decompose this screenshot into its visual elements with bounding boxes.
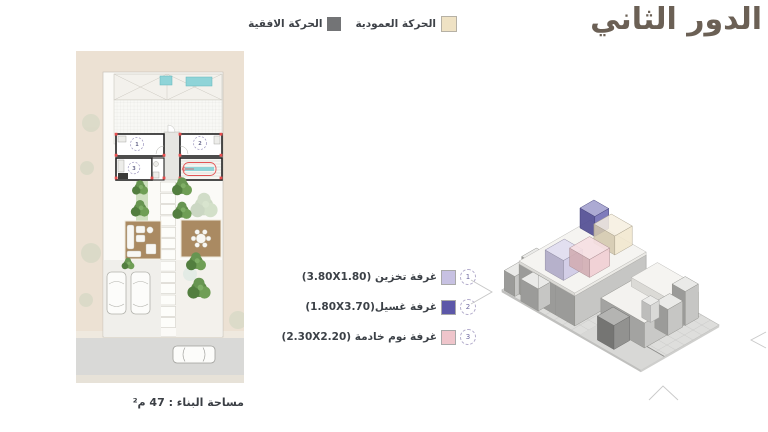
page-title: الدور الثاني	[590, 2, 762, 37]
room-number-badge-3: 3	[460, 329, 476, 345]
roof-pergola	[114, 74, 222, 100]
room-label-2: غرفة غسيل(1.80X3.70)	[305, 301, 437, 313]
room-color-swatch-3	[441, 330, 456, 345]
water-tank-small	[160, 76, 172, 85]
legend-swatch-horizontal	[327, 17, 341, 31]
legend-item-vertical: الحركة العمودية	[355, 16, 457, 32]
room-color-swatch-1	[441, 270, 456, 285]
plan-tag-2: 2	[198, 141, 202, 147]
building-area-label: مساحة البناء : 47 م²	[76, 396, 244, 409]
legend-label-vertical: الحركة العمودية	[355, 18, 436, 30]
legend-swatch-vertical	[441, 16, 457, 32]
floor-plan: 1 2 3	[76, 48, 244, 388]
shaft	[164, 132, 180, 180]
side-yard	[176, 260, 222, 337]
room-label-3: غرفة نوم خادمة (2.30X2.20)	[282, 331, 437, 343]
room-number-badge-1: 1	[460, 269, 476, 285]
room-label-1: غرفة تخزين (3.80X1.80)	[302, 271, 437, 283]
room-list-item-1: 1 غرفة تخزين (3.80X1.80)	[300, 262, 476, 292]
parked-car-2	[131, 272, 150, 314]
legend: الحركة العمودية الحركة الافقية	[255, 16, 457, 32]
legend-label-horizontal: الحركة الافقية	[248, 18, 322, 30]
chevron-right	[751, 332, 766, 348]
street-edge	[76, 375, 244, 383]
room-list-item-3: 3 غرفة نوم خادمة (2.30X2.20)	[300, 322, 476, 352]
counter	[118, 173, 128, 179]
street-car	[173, 346, 215, 363]
water-tank-large	[186, 77, 212, 86]
legend-item-horizontal: الحركة الافقية	[248, 17, 341, 31]
parked-car-1	[107, 272, 126, 314]
street	[76, 338, 244, 375]
room-list-item-2: 2 غرفة غسيل(1.80X3.70)	[300, 292, 476, 322]
plan-tag-3: 3	[132, 166, 136, 172]
isometric-3d-view	[500, 188, 745, 393]
room-number-badge-2: 2	[460, 299, 476, 315]
room-color-swatch-2	[441, 300, 456, 315]
room-list: 1 غرفة تخزين (3.80X1.80) 2 غرفة غسيل(1.8…	[300, 262, 476, 352]
plan-tag-1: 1	[135, 142, 139, 148]
